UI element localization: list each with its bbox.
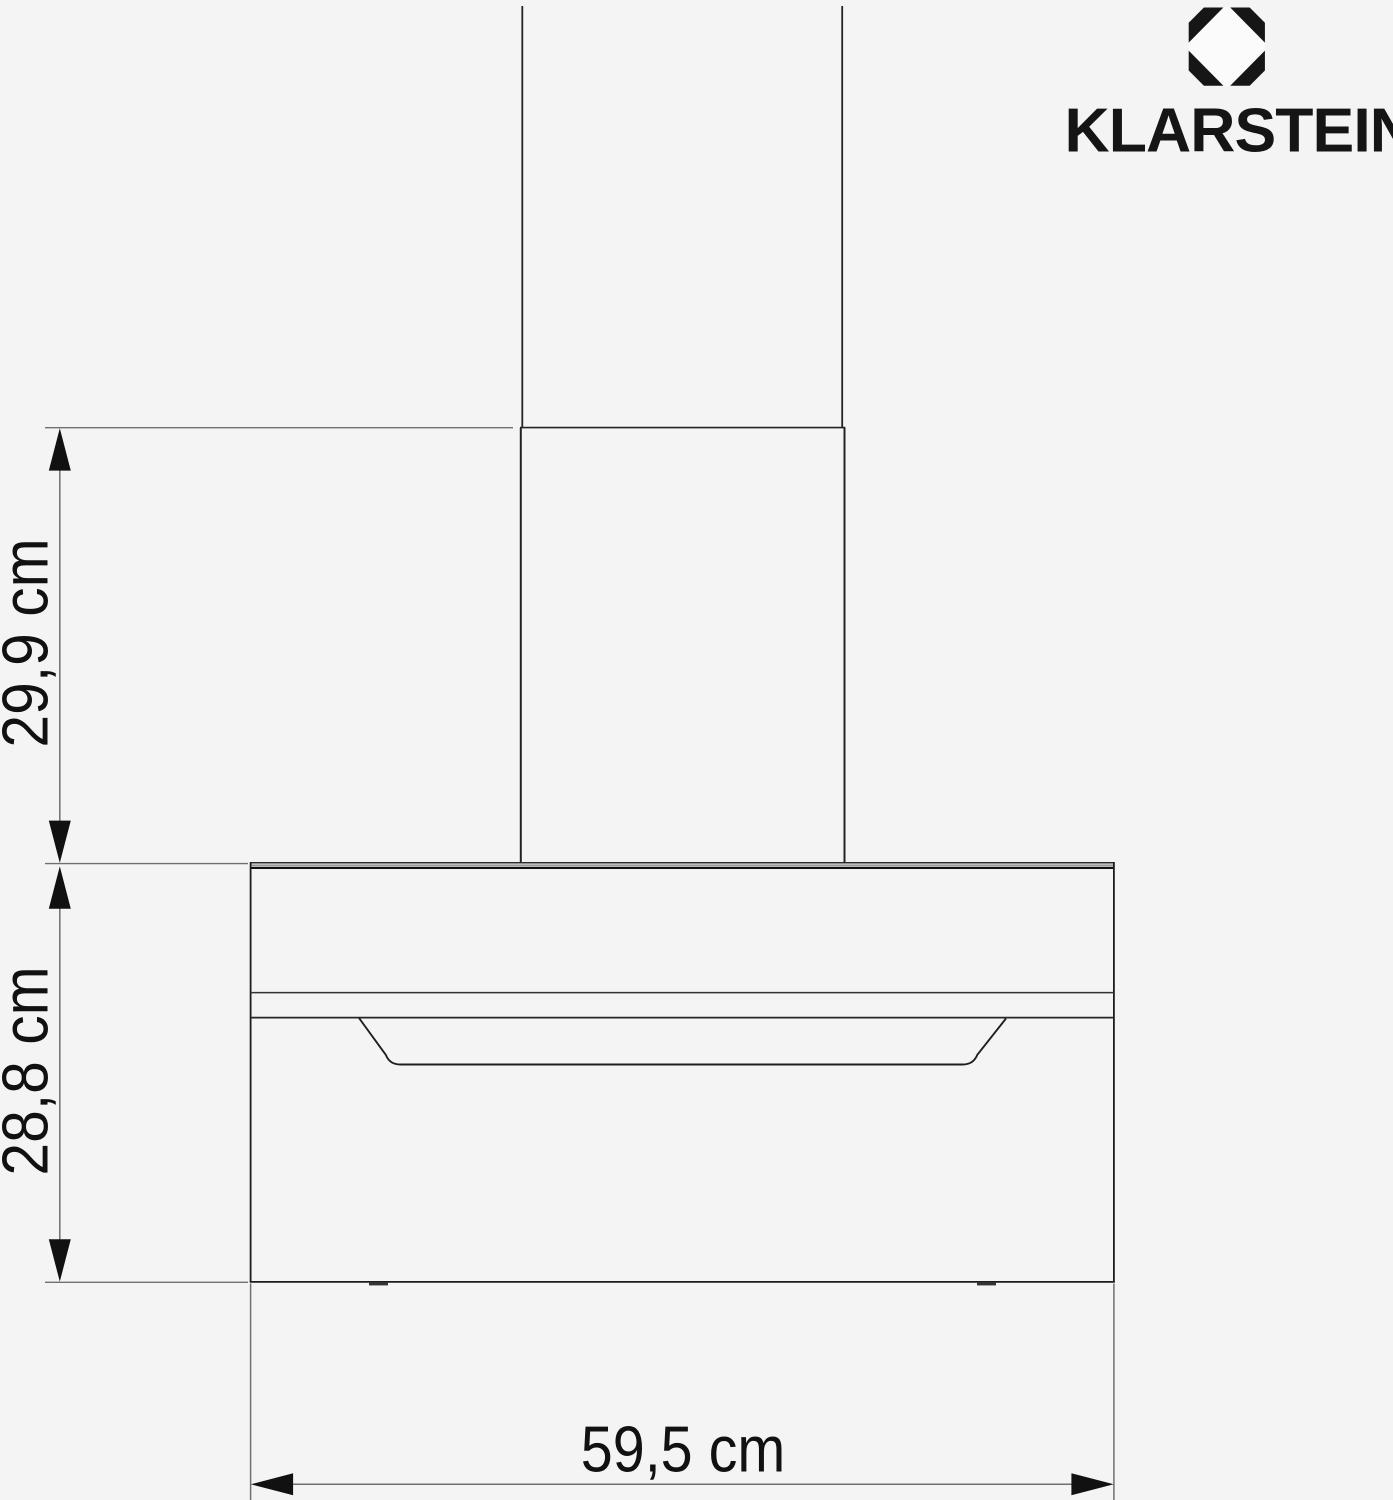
svg-text:KLARSTEIN: KLARSTEIN	[1065, 96, 1393, 166]
svg-text:29,9 cm: 29,9 cm	[0, 538, 62, 747]
svg-text:28,8 cm: 28,8 cm	[0, 966, 62, 1175]
svg-text:59,5 cm: 59,5 cm	[581, 1413, 786, 1486]
